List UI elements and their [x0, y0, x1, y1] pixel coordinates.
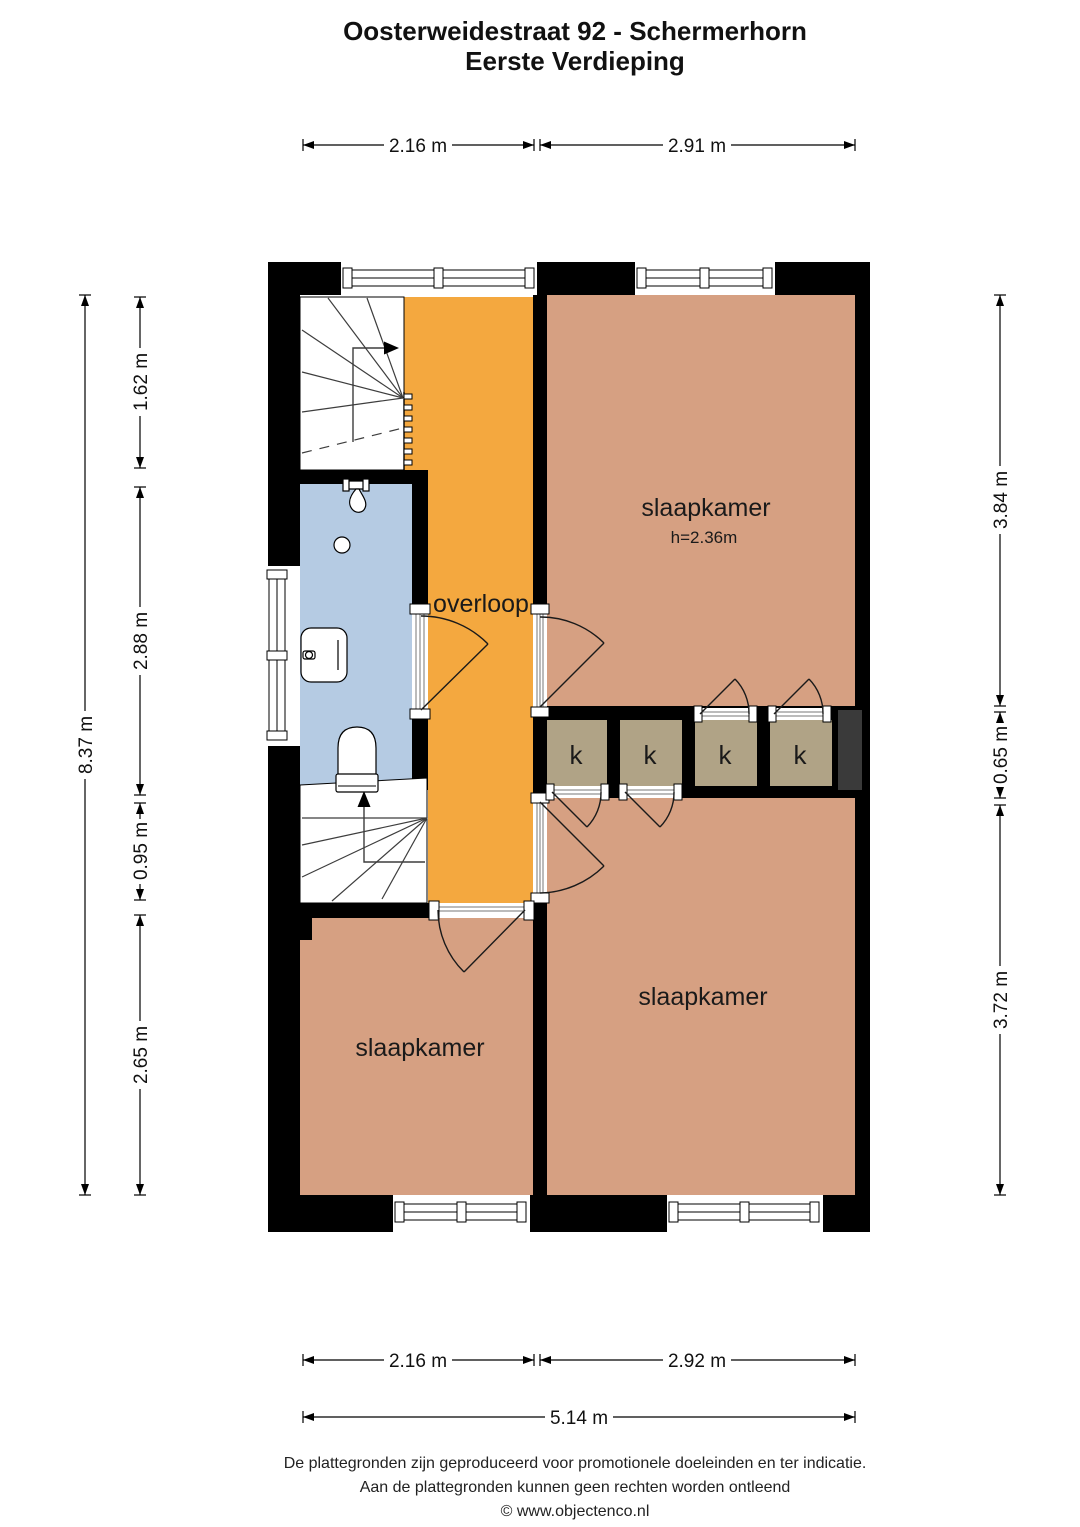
dimension-left-4: 2.65 m [129, 915, 152, 1195]
page-title: Oosterweidestraat 92 - Schermerhorn Eers… [343, 16, 807, 76]
bedroom-bottom-right-label: slaapkamer [638, 983, 767, 1011]
closets [547, 710, 862, 790]
dimension-top-left: 2.16 m [303, 134, 534, 157]
bedroom-top-label: slaapkamer [641, 494, 770, 522]
svg-text:3.72 m: 3.72 m [991, 971, 1012, 1029]
window-bottom-right [667, 1195, 823, 1232]
title-line-1: Oosterweidestraat 92 - Schermerhorn [343, 16, 807, 46]
dimension-left-1: 1.62 m [129, 297, 152, 468]
window-bathroom [263, 566, 300, 746]
landing-floor-lower [428, 470, 533, 903]
stairs-lower [300, 778, 427, 903]
window-top-left [341, 262, 537, 295]
dimension-right-3: 3.72 m [989, 805, 1012, 1195]
shaft [838, 710, 862, 790]
landing-label: overloop [433, 590, 529, 618]
washbasin-icon [301, 628, 347, 682]
dimension-right-1: 3.84 m [989, 295, 1012, 706]
closet-4-label: k [794, 740, 808, 770]
svg-text:5.14 m: 5.14 m [550, 1408, 608, 1429]
floor-plan-page: Oosterweidestraat 92 - Schermerhorn Eers… [0, 0, 1080, 1527]
dimension-left-2: 2.88 m [129, 487, 152, 795]
bedroom-bottom-left-label: slaapkamer [355, 1034, 484, 1062]
footer-line-1: De plattegronden zijn geproduceerd voor … [284, 1455, 867, 1472]
window-bottom-left [393, 1195, 530, 1232]
drain-icon [334, 537, 350, 553]
svg-text:3.84 m: 3.84 m [991, 471, 1012, 529]
closet-3-label: k [719, 740, 733, 770]
window-top-right [635, 262, 775, 295]
closet-1-label: k [570, 740, 584, 770]
dimension-top-right: 2.91 m [540, 134, 855, 157]
dimension-bottom-right: 2.92 m [540, 1349, 855, 1372]
svg-text:2.91 m: 2.91 m [668, 136, 726, 157]
title-line-2: Eerste Verdieping [465, 46, 685, 76]
dimension-left-3: 0.95 m [129, 803, 152, 900]
landing-floor-upper [404, 297, 533, 473]
dimension-right-2: 0.65 m [989, 712, 1012, 798]
toilet-icon [336, 727, 378, 792]
svg-text:8.37 m: 8.37 m [76, 716, 97, 774]
svg-text:2.92 m: 2.92 m [668, 1351, 726, 1372]
svg-text:0.95 m: 0.95 m [131, 822, 152, 880]
bedroom-divider-wall [533, 903, 547, 1232]
svg-text:2.88 m: 2.88 m [131, 612, 152, 670]
svg-text:2.65 m: 2.65 m [131, 1026, 152, 1084]
floor-plan-svg: Oosterweidestraat 92 - Schermerhorn Eers… [0, 0, 1080, 1527]
dimension-bottom-total: 5.14 m [303, 1406, 855, 1429]
bedroom-bottom-left-top-wall [300, 903, 437, 918]
closet-2-label: k [644, 740, 658, 770]
footer-disclaimer: De plattegronden zijn geproduceerd voor … [284, 1455, 867, 1520]
footer-line-3: © www.objectenco.nl [501, 1503, 650, 1520]
stairs-upper [300, 297, 412, 470]
wall-stub [300, 918, 312, 940]
svg-text:0.65 m: 0.65 m [991, 726, 1012, 784]
footer-line-2: Aan de plattegronden kunnen geen rechten… [360, 1479, 791, 1496]
svg-text:2.16 m: 2.16 m [389, 136, 447, 157]
dimension-bottom-left: 2.16 m [303, 1349, 534, 1372]
svg-text:2.16 m: 2.16 m [389, 1351, 447, 1372]
bedroom-top-height-note: h=2.36m [671, 528, 738, 547]
dimension-left-total: 8.37 m [74, 295, 97, 1195]
svg-text:1.62 m: 1.62 m [131, 353, 152, 411]
